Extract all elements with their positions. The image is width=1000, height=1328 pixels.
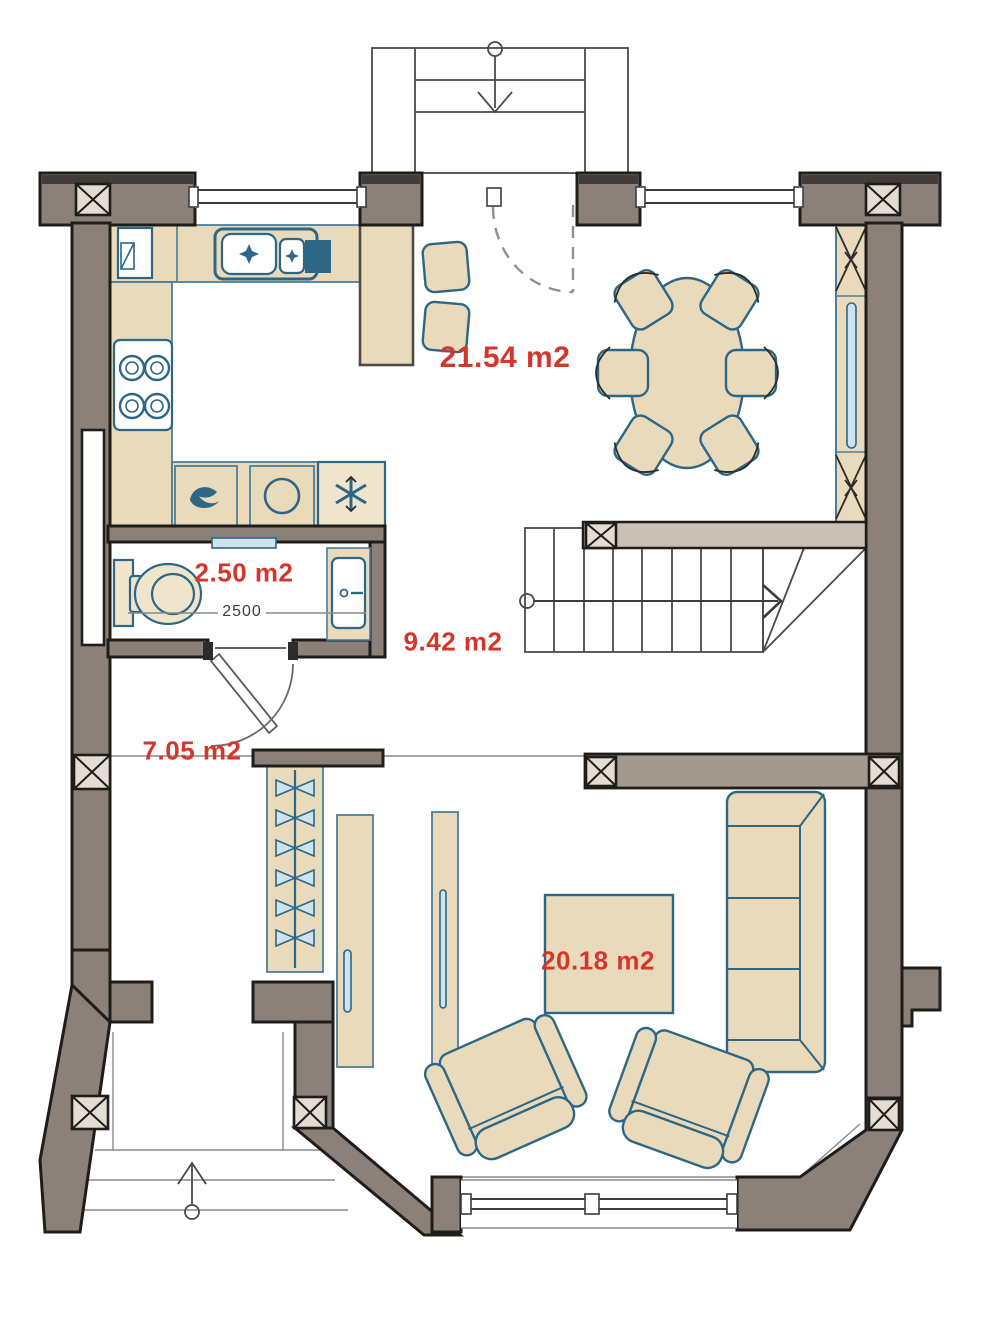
column-box <box>866 184 900 215</box>
column-box <box>294 1097 326 1128</box>
column-box <box>869 757 899 786</box>
label-living-room-area: 20.18 m2 <box>541 946 655 977</box>
top-porch <box>372 42 628 173</box>
bathroom-wall-bottom <box>108 640 208 657</box>
kitchen <box>110 225 470 526</box>
dining-east-strip <box>836 225 866 522</box>
round-appliance-icon <box>250 466 314 526</box>
stair-wall-lower <box>585 754 902 788</box>
toilet <box>114 560 201 626</box>
hall-cabinet <box>337 815 373 1067</box>
window-top-right <box>636 186 803 208</box>
bathroom <box>114 538 370 640</box>
kitchen-sink <box>215 229 331 279</box>
column-box <box>586 757 616 786</box>
column-box <box>869 1099 899 1130</box>
left-wall-window <box>82 430 104 645</box>
washing-machine-icon <box>175 466 237 526</box>
entrance-door <box>487 188 573 292</box>
floor-plan-drawing <box>0 0 1000 1328</box>
dining-chair <box>726 347 778 399</box>
bar-counter <box>360 225 413 365</box>
panel-handle <box>440 890 446 1008</box>
stair-start-circle <box>520 594 534 608</box>
column-box <box>76 184 110 215</box>
porch-datum-circle <box>488 42 502 56</box>
bathroom-door <box>203 642 298 746</box>
bathroom-wall-right <box>370 542 385 657</box>
wall-right <box>866 223 902 1098</box>
dining-chair <box>596 347 648 399</box>
window-top-left <box>189 186 366 208</box>
wall-porch-block <box>253 982 333 1022</box>
bar-stool <box>422 241 470 293</box>
window-bottom <box>461 1180 737 1228</box>
wall-porch-step <box>110 982 152 1022</box>
cabinet-handle <box>344 950 351 1012</box>
washbasin <box>327 548 370 640</box>
column-box <box>586 523 616 548</box>
stair-wall-upper <box>583 522 866 548</box>
bathroom-shelf <box>212 538 276 548</box>
wall-chimney <box>902 968 940 1026</box>
wardrobe-wall <box>253 750 383 766</box>
dining-set <box>596 263 778 482</box>
column-box <box>74 755 110 789</box>
wall-window-abutment <box>432 1177 461 1232</box>
label-kitchen-dining-area: 21.54 m2 <box>440 341 571 375</box>
floor-plan: 21.54 m2 2.50 m2 2500 9.42 m2 7.05 m2 20… <box>0 0 1000 1328</box>
label-stair-hall-area: 9.42 m2 <box>404 627 503 658</box>
radiator <box>847 303 856 448</box>
tall-cabinet-icon <box>118 228 152 278</box>
living-room <box>420 792 825 1178</box>
porch-datum-circle <box>185 1205 199 1219</box>
label-hallway-area: 7.05 m2 <box>143 736 242 767</box>
label-bathroom-dimension: 2500 <box>222 603 262 621</box>
freezer-icon <box>318 462 385 526</box>
label-bathroom-area: 2.50 m2 <box>195 558 294 589</box>
column-box <box>72 1096 108 1129</box>
cooktop-icon <box>114 340 172 430</box>
sofa <box>727 792 825 1072</box>
